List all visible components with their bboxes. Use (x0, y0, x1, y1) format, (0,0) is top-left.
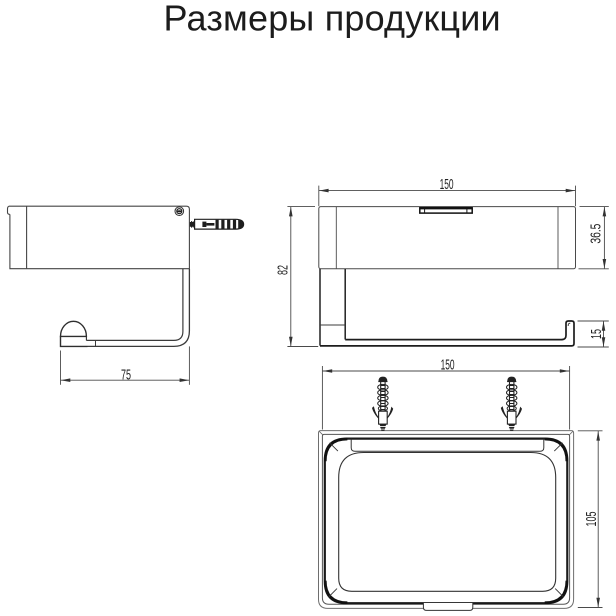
svg-text:15: 15 (588, 329, 605, 339)
svg-text:105: 105 (583, 512, 600, 527)
svg-text:75: 75 (121, 366, 131, 383)
svg-text:150: 150 (441, 357, 455, 374)
svg-text:82: 82 (275, 265, 292, 275)
svg-text:150: 150 (440, 176, 454, 193)
svg-text:36.5: 36.5 (588, 224, 605, 244)
svg-text:Размеры продукции: Размеры продукции (164, 0, 501, 39)
